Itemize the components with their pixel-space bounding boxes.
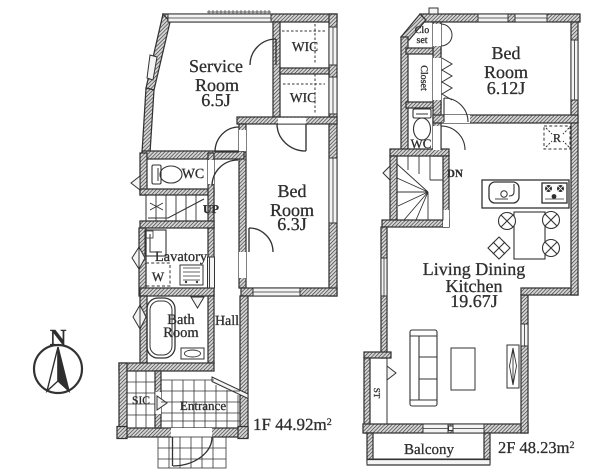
svg-text:WIC: WIC <box>292 39 318 54</box>
svg-text:6.3J: 6.3J <box>277 214 307 234</box>
svg-text:6.12J: 6.12J <box>487 78 526 98</box>
svg-text:Closet: Closet <box>418 65 429 91</box>
svg-text:SIC: SIC <box>132 395 150 407</box>
svg-text:Lavatory: Lavatory <box>155 249 208 265</box>
svg-text:Entrance: Entrance <box>180 398 226 413</box>
svg-text:Hall: Hall <box>215 314 239 329</box>
svg-text:UP: UP <box>203 202 219 216</box>
svg-text:R: R <box>553 131 561 145</box>
svg-text:Balcony: Balcony <box>404 442 454 458</box>
svg-text:set: set <box>416 35 427 46</box>
svg-text:WC: WC <box>411 136 432 151</box>
svg-text:W: W <box>152 269 165 284</box>
svg-text:19.67J: 19.67J <box>450 291 498 311</box>
svg-text:6.5J: 6.5J <box>201 90 231 110</box>
svg-text:Bed: Bed <box>278 181 307 201</box>
svg-text:WIC: WIC <box>290 90 316 105</box>
svg-text:WC: WC <box>182 167 205 182</box>
svg-text:1F 44.92m2: 1F 44.92m2 <box>253 415 332 434</box>
svg-text:DN: DN <box>447 168 463 180</box>
svg-text:Room: Room <box>163 325 199 341</box>
svg-text:Service: Service <box>189 56 243 76</box>
svg-text:N: N <box>50 325 67 350</box>
svg-text:2F 48.23m2: 2F 48.23m2 <box>498 438 575 457</box>
svg-text:Bed: Bed <box>492 43 521 63</box>
svg-text:ST: ST <box>372 388 382 399</box>
